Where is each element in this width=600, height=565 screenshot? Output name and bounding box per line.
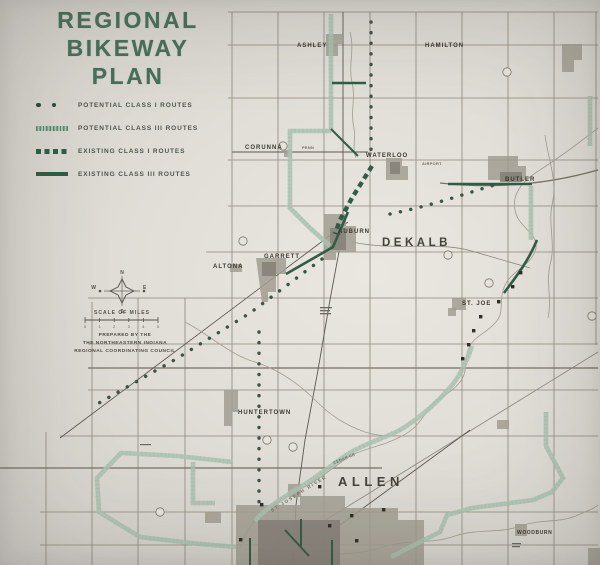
compass-rose: N S E W bbox=[91, 270, 147, 315]
county-label-dekalb: DEKALB bbox=[382, 237, 451, 249]
compass-north-label: N bbox=[120, 270, 124, 276]
county-label-allen: ALLEN bbox=[338, 474, 404, 489]
legend-item-existing-class1: EXISTING CLASS I ROUTES bbox=[36, 144, 198, 158]
scale-tick-1: 1 bbox=[99, 325, 101, 329]
bikeway-plan-map-photo: N S E W SCALE OF MILES 0 1 2 3 4 5 PREPA… bbox=[0, 0, 600, 565]
town-label-altona: ALTONA bbox=[213, 264, 243, 270]
existing-class1-dashed-symbol bbox=[36, 149, 68, 154]
legend-item-existing-class3: EXISTING CLASS III ROUTES bbox=[36, 167, 198, 181]
scale-tick-5: 5 bbox=[157, 325, 159, 329]
town-label-huntertown: HUNTERTOWN bbox=[238, 410, 291, 416]
town-label-st-joe: ST. JOE bbox=[462, 301, 491, 307]
town-label-hamilton: HAMILTON bbox=[425, 43, 464, 49]
town-label-butler: BUTLER bbox=[505, 177, 535, 183]
credit-block: PREPARED BY THE THE NORTHEASTERN INDIANA… bbox=[74, 332, 175, 354]
scale-tick-3: 3 bbox=[128, 325, 130, 329]
compass-west-label: W bbox=[91, 285, 96, 291]
legend-item-potential-class3: POTENTIAL CLASS III ROUTES bbox=[36, 121, 198, 135]
airport-label: AIRPORT bbox=[422, 162, 442, 166]
map-legend: POTENTIAL CLASS I ROUTES POTENTIAL CLASS… bbox=[36, 98, 198, 181]
town-label-ashley: ASHLEY bbox=[297, 43, 327, 49]
existing-class3-solid-symbol bbox=[36, 172, 68, 177]
potential-class3-hatched-symbol bbox=[36, 126, 68, 131]
compass-east-label: E bbox=[143, 285, 147, 291]
scale-bar: SCALE OF MILES 0 1 2 3 4 5 bbox=[84, 310, 159, 329]
map-title-line-2: BIKEWAY bbox=[38, 34, 218, 62]
town-label-woodburn: WOODBURN bbox=[517, 530, 552, 536]
scale-label: SCALE OF MILES bbox=[94, 310, 150, 316]
legend-label: EXISTING CLASS I ROUTES bbox=[78, 148, 185, 155]
railroad-label-penn: PENN bbox=[302, 146, 314, 150]
map-title: REGIONAL BIKEWAY PLAN bbox=[38, 6, 218, 90]
highway-shields bbox=[156, 68, 596, 516]
legend-label: POTENTIAL CLASS III ROUTES bbox=[78, 125, 198, 132]
scale-tick-0: 0 bbox=[84, 325, 86, 329]
credit-line-3: REGIONAL COORDINATING COUNCIL bbox=[74, 348, 175, 354]
legend-label: EXISTING CLASS III ROUTES bbox=[78, 171, 191, 178]
legend-item-potential-class1: POTENTIAL CLASS I ROUTES bbox=[36, 98, 198, 112]
town-label-garrett: GARRETT bbox=[264, 254, 300, 260]
routes-potential-class1 bbox=[92, 22, 501, 506]
town-label-corunna: CORUNNA bbox=[245, 145, 283, 151]
town-label-auburn: AUBURN bbox=[338, 229, 370, 235]
potential-class1-dots-symbol bbox=[36, 103, 68, 108]
credit-line-1: PREPARED BY THE bbox=[99, 332, 152, 338]
scale-tick-2: 2 bbox=[113, 325, 115, 329]
map-title-line-3: PLAN bbox=[38, 62, 218, 90]
map-title-line-1: REGIONAL bbox=[38, 6, 218, 34]
scale-tick-4: 4 bbox=[142, 325, 144, 329]
town-label-waterloo: WATERLOO bbox=[366, 153, 408, 159]
credit-line-2: THE NORTHEASTERN INDIANA bbox=[83, 340, 167, 346]
legend-label: POTENTIAL CLASS I ROUTES bbox=[78, 102, 193, 109]
